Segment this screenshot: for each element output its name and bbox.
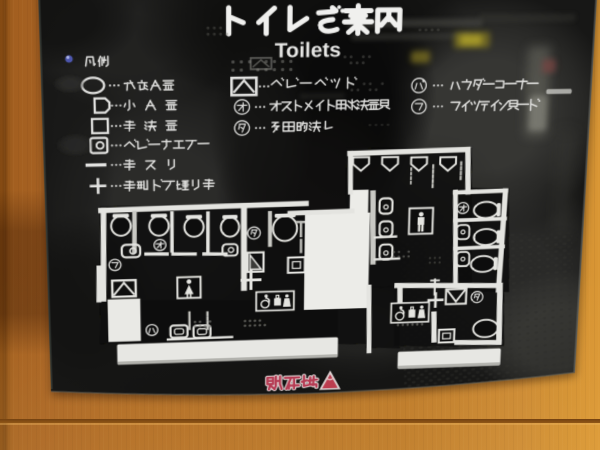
svg-text:Toilets: Toilets	[275, 38, 342, 62]
